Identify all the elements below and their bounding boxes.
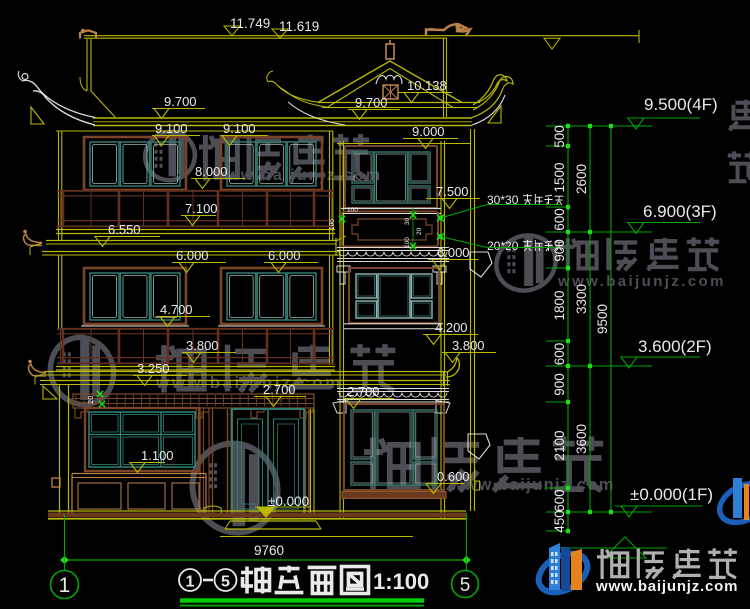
svg-text:6.000: 6.000 xyxy=(268,248,301,263)
svg-text:900: 900 xyxy=(552,373,567,396)
svg-text:2600: 2600 xyxy=(574,164,589,194)
svg-text:20*20: 20*20 xyxy=(487,239,519,253)
svg-text:6.000: 6.000 xyxy=(437,245,470,260)
svg-text:20: 20 xyxy=(86,396,95,404)
svg-text:www.baijunjz.com: www.baijunjz.com xyxy=(595,578,738,595)
svg-text:7.100: 7.100 xyxy=(185,201,218,216)
svg-text:100: 100 xyxy=(404,237,411,248)
svg-text:9.100: 9.100 xyxy=(223,121,256,136)
svg-text:2100: 2100 xyxy=(552,430,567,460)
svg-text:1: 1 xyxy=(59,574,71,597)
svg-text:100: 100 xyxy=(329,219,336,230)
svg-text:6.550: 6.550 xyxy=(108,222,141,237)
svg-text:1.100: 1.100 xyxy=(141,448,174,463)
svg-text:1500: 1500 xyxy=(552,162,567,192)
svg-text:5: 5 xyxy=(460,575,471,596)
svg-text:3300: 3300 xyxy=(574,284,589,314)
svg-text:7.500: 7.500 xyxy=(436,184,469,199)
svg-text:9.000: 9.000 xyxy=(412,124,445,139)
svg-text:11.619: 11.619 xyxy=(279,19,319,34)
svg-text:www.baijunjz.com: www.baijunjz.com xyxy=(211,167,382,184)
svg-text:30: 30 xyxy=(404,217,411,225)
svg-text:6.000: 6.000 xyxy=(176,248,209,263)
svg-text:3.800: 3.800 xyxy=(452,338,485,353)
svg-text:100: 100 xyxy=(347,207,358,214)
svg-text:5: 5 xyxy=(221,574,230,591)
svg-text:8.000: 8.000 xyxy=(195,164,228,179)
svg-text:1: 1 xyxy=(186,574,195,591)
svg-text:0.600: 0.600 xyxy=(437,469,470,484)
svg-text:2.700: 2.700 xyxy=(347,384,380,399)
svg-text:3.600(2F): 3.600(2F) xyxy=(638,337,712,356)
svg-text:10.138: 10.138 xyxy=(407,78,447,93)
svg-text:4.700: 4.700 xyxy=(160,302,193,317)
svg-text:2.700: 2.700 xyxy=(263,382,296,397)
svg-text:9760: 9760 xyxy=(254,543,284,558)
svg-text:9500: 9500 xyxy=(595,304,610,334)
svg-text:900: 900 xyxy=(552,239,567,262)
svg-text:9.700: 9.700 xyxy=(164,94,197,109)
svg-text:600: 600 xyxy=(552,343,567,366)
svg-text:6.900(3F): 6.900(3F) xyxy=(643,202,717,221)
svg-text:3.250: 3.250 xyxy=(137,361,170,376)
svg-text:20: 20 xyxy=(416,227,423,235)
svg-text:±0.000(1F): ±0.000(1F) xyxy=(630,485,713,504)
svg-text:1:100: 1:100 xyxy=(373,569,429,594)
svg-text:1800: 1800 xyxy=(552,290,567,320)
svg-text:9.700: 9.700 xyxy=(355,95,388,110)
svg-text:9.100: 9.100 xyxy=(155,121,188,136)
svg-text:450: 450 xyxy=(552,510,567,533)
svg-text:3.800: 3.800 xyxy=(186,338,219,353)
svg-text:9.500(4F): 9.500(4F) xyxy=(644,95,718,114)
svg-text:4.200: 4.200 xyxy=(435,320,468,335)
svg-text:3600: 3600 xyxy=(574,424,589,454)
svg-text:11.749: 11.749 xyxy=(230,16,270,31)
svg-text:600: 600 xyxy=(552,208,567,231)
svg-text:500: 500 xyxy=(552,125,567,148)
svg-text:600: 600 xyxy=(552,489,567,512)
